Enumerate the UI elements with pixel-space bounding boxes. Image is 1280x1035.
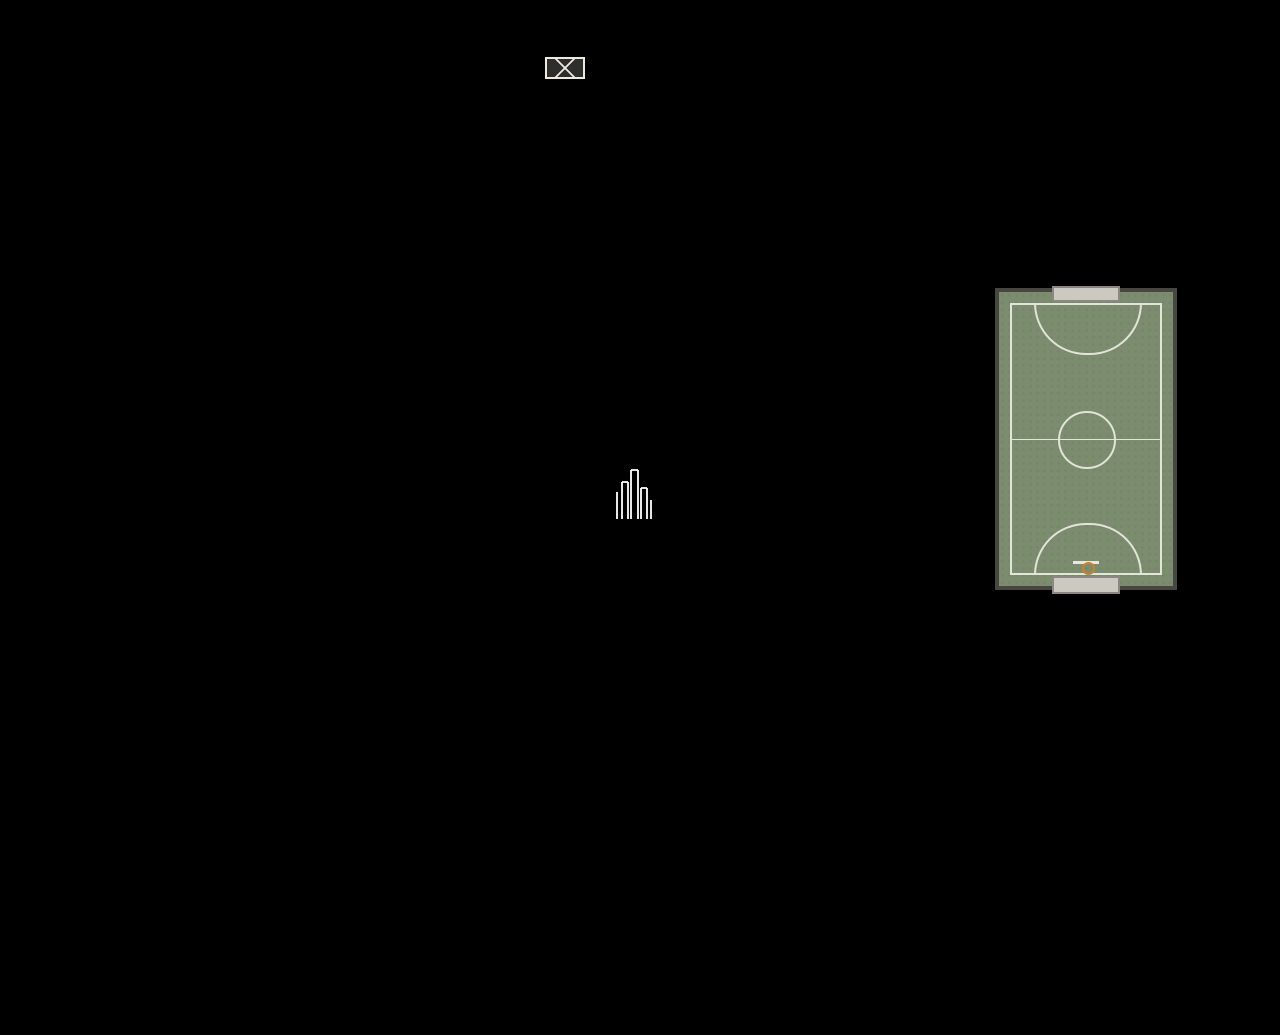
basketball-hoop-icon (1082, 562, 1095, 575)
buildings-logo-icon (534, 462, 734, 525)
goal-top (1052, 286, 1120, 302)
court-center-circle (1058, 411, 1116, 469)
brand-logo (534, 462, 734, 528)
site-plan (0, 0, 1280, 1035)
goal-bottom (1052, 576, 1120, 594)
sports-court (995, 288, 1177, 590)
skylight-icon (545, 57, 585, 79)
